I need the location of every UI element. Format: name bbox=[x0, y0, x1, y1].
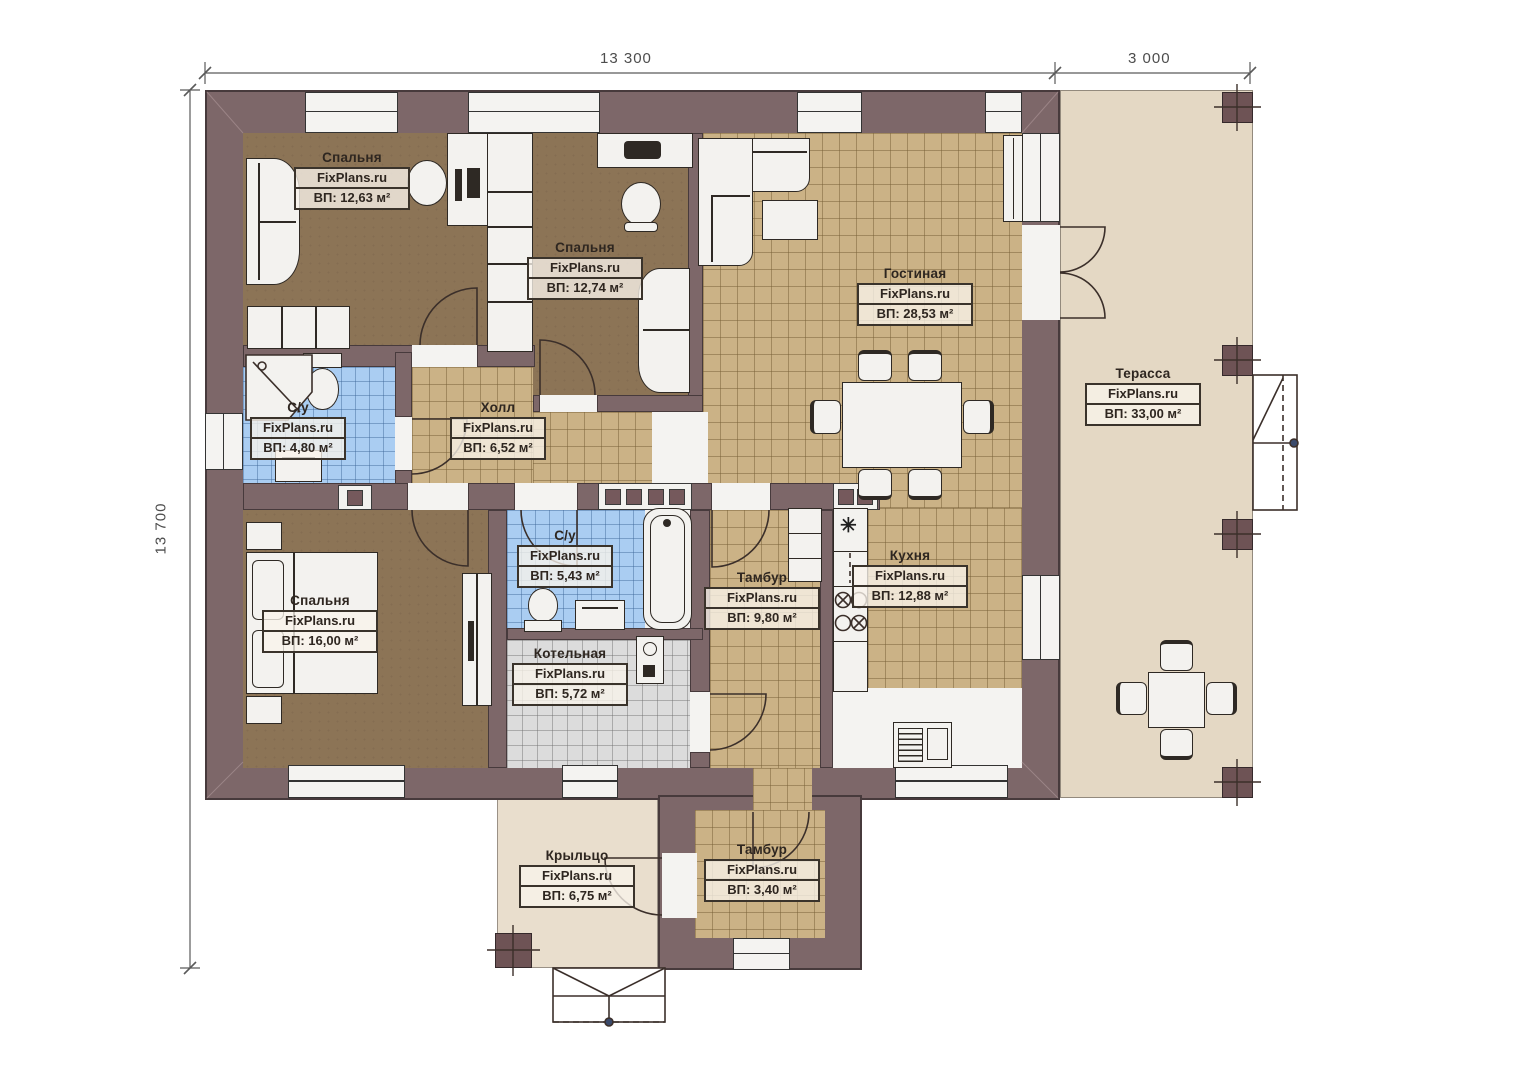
chair bbox=[1160, 640, 1193, 671]
room-area: ВП: 6,52 м² bbox=[450, 437, 546, 459]
room-label-terrace: Терасса FixPlans.ru ВП: 33,00 м² bbox=[1085, 366, 1201, 426]
window bbox=[288, 765, 405, 798]
vestibule-passage bbox=[753, 768, 812, 810]
room-label-vestibule-2: Тамбур FixPlans.ru ВП: 3,40 м² bbox=[704, 842, 820, 902]
porch-door-opening bbox=[662, 853, 697, 918]
toilet bbox=[528, 588, 558, 622]
chair bbox=[407, 160, 447, 206]
watermark: FixPlans.ru bbox=[857, 283, 973, 305]
room-name: С/у bbox=[554, 528, 576, 543]
room-label-bedroom-3: Спальня FixPlans.ru ВП: 16,00 м² bbox=[262, 593, 378, 653]
dim-height: 13 700 bbox=[152, 503, 169, 555]
door-opening bbox=[690, 692, 710, 752]
terrace-door-opening bbox=[1022, 225, 1060, 320]
room-name: Крыльцо bbox=[546, 848, 609, 863]
column bbox=[1222, 345, 1253, 376]
door-opening bbox=[540, 395, 597, 412]
room-area: ВП: 3,40 м² bbox=[704, 879, 820, 901]
wall bbox=[468, 483, 515, 510]
dim-width-terrace: 3 000 bbox=[1128, 50, 1171, 67]
room-area: ВП: 9,80 м² bbox=[704, 607, 820, 629]
cabinet-row bbox=[247, 306, 350, 349]
column bbox=[1222, 519, 1253, 550]
room-label-living-room: Гостиная FixPlans.ru ВП: 28,53 м² bbox=[857, 266, 973, 326]
terrace-table bbox=[1148, 672, 1205, 728]
wall bbox=[395, 352, 412, 417]
coffee-table bbox=[762, 200, 818, 240]
vent-shaft bbox=[338, 485, 372, 510]
room-area: ВП: 28,53 м² bbox=[857, 303, 973, 325]
chair-back bbox=[624, 222, 658, 232]
window bbox=[1022, 575, 1060, 660]
door-opening bbox=[712, 483, 770, 510]
room-area: ВП: 12,74 м² bbox=[527, 277, 643, 299]
watermark: FixPlans.ru bbox=[517, 545, 613, 567]
room-name: Терасса bbox=[1116, 366, 1171, 381]
door-opening bbox=[408, 483, 468, 510]
room-name: Тамбур bbox=[737, 842, 787, 857]
desk bbox=[597, 133, 693, 168]
dining-table bbox=[842, 382, 962, 468]
desk bbox=[447, 133, 492, 226]
watermark: FixPlans.ru bbox=[704, 859, 820, 881]
room-name: Тамбур bbox=[737, 570, 787, 585]
room-label-bathroom-1: С/у FixPlans.ru ВП: 4,80 м² bbox=[250, 400, 346, 460]
stove-vent-icon: ✳ bbox=[840, 513, 857, 538]
porch-steps bbox=[553, 968, 665, 1026]
room-area: ВП: 6,75 м² bbox=[519, 885, 635, 907]
window bbox=[797, 92, 862, 133]
watermark: FixPlans.ru bbox=[519, 865, 635, 887]
chair bbox=[908, 350, 942, 381]
watermark: FixPlans.ru bbox=[450, 417, 546, 439]
window bbox=[562, 765, 618, 798]
dishwasher bbox=[898, 728, 923, 762]
hall-living-opening bbox=[652, 412, 708, 483]
room-name: Спальня bbox=[555, 240, 615, 255]
room-name: Гостиная bbox=[884, 266, 947, 281]
toilet-base bbox=[524, 620, 562, 632]
room-label-bathroom-2: С/у FixPlans.ru ВП: 5,43 м² bbox=[517, 528, 613, 588]
sink bbox=[575, 600, 625, 630]
watermark: FixPlans.ru bbox=[512, 663, 628, 685]
chair bbox=[1116, 682, 1147, 715]
nightstand bbox=[246, 696, 282, 724]
sofa bbox=[698, 138, 753, 266]
wall bbox=[597, 395, 703, 412]
watermark: FixPlans.ru bbox=[294, 167, 410, 189]
wall bbox=[243, 483, 408, 510]
watermark: FixPlans.ru bbox=[1085, 383, 1201, 405]
vent-shaft bbox=[598, 483, 692, 510]
watermark: FixPlans.ru bbox=[527, 257, 643, 279]
sofa bbox=[246, 158, 300, 285]
chair bbox=[858, 350, 892, 381]
chair bbox=[621, 182, 661, 226]
watermark: FixPlans.ru bbox=[250, 417, 346, 439]
room-area: ВП: 5,43 м² bbox=[517, 565, 613, 587]
room-area: ВП: 12,88 м² bbox=[852, 585, 968, 607]
floor-plan: 13 300 3 000 13 700 bbox=[0, 0, 1528, 1080]
room-name: Кухня bbox=[890, 548, 930, 563]
door-opening bbox=[395, 417, 412, 470]
bathtub bbox=[643, 508, 692, 630]
window bbox=[895, 765, 1008, 798]
room-name: Холл bbox=[481, 400, 516, 415]
chair bbox=[963, 400, 994, 434]
window bbox=[1022, 133, 1060, 222]
chair bbox=[810, 400, 841, 434]
room-label-hall: Холл FixPlans.ru ВП: 6,52 м² bbox=[450, 400, 546, 460]
room-name: Спальня bbox=[290, 593, 350, 608]
window bbox=[468, 92, 600, 133]
chair bbox=[908, 469, 942, 500]
wall bbox=[690, 752, 710, 768]
chair bbox=[1206, 682, 1237, 715]
room-label-porch: Крыльцо FixPlans.ru ВП: 6,75 м² bbox=[519, 848, 635, 908]
room-area: ВП: 4,80 м² bbox=[250, 437, 346, 459]
hall-floor-b bbox=[533, 412, 652, 483]
watermark: FixPlans.ru bbox=[852, 565, 968, 587]
column bbox=[1222, 92, 1253, 123]
door-opening bbox=[412, 345, 477, 367]
dim-width-main: 13 300 bbox=[600, 50, 652, 67]
watermark: FixPlans.ru bbox=[704, 587, 820, 609]
room-label-vestibule-1: Тамбур FixPlans.ru ВП: 9,80 м² bbox=[704, 570, 820, 630]
room-area: ВП: 12,63 м² bbox=[294, 187, 410, 209]
room-area: ВП: 5,72 м² bbox=[512, 683, 628, 705]
window bbox=[205, 413, 243, 470]
window bbox=[985, 92, 1022, 133]
wardrobe bbox=[462, 573, 492, 706]
boiler bbox=[636, 636, 664, 684]
toilet-tank bbox=[303, 353, 342, 368]
room-label-boiler-room: Котельная FixPlans.ru ВП: 5,72 м² bbox=[512, 646, 628, 706]
room-name: Спальня bbox=[322, 150, 382, 165]
room-area: ВП: 16,00 м² bbox=[262, 630, 378, 652]
room-name: С/у bbox=[287, 400, 309, 415]
nightstand bbox=[246, 522, 282, 550]
column bbox=[495, 933, 532, 968]
room-area: ВП: 33,00 м² bbox=[1085, 403, 1201, 425]
room-label-bedroom-2: Спальня FixPlans.ru ВП: 12,74 м² bbox=[527, 240, 643, 300]
sofa bbox=[638, 268, 690, 393]
window bbox=[305, 92, 398, 133]
chair bbox=[858, 469, 892, 500]
watermark: FixPlans.ru bbox=[262, 610, 378, 632]
room-name: Котельная bbox=[534, 646, 606, 661]
room-label-bedroom-1: Спальня FixPlans.ru ВП: 12,63 м² bbox=[294, 150, 410, 210]
door-opening bbox=[515, 483, 577, 510]
radiator bbox=[1003, 135, 1023, 222]
kitchen-sink bbox=[927, 728, 948, 760]
terrace-stair bbox=[1253, 375, 1298, 510]
chair bbox=[1160, 729, 1193, 760]
column bbox=[1222, 767, 1253, 798]
window bbox=[733, 938, 790, 970]
room-label-kitchen: Кухня FixPlans.ru ВП: 12,88 м² bbox=[852, 548, 968, 608]
